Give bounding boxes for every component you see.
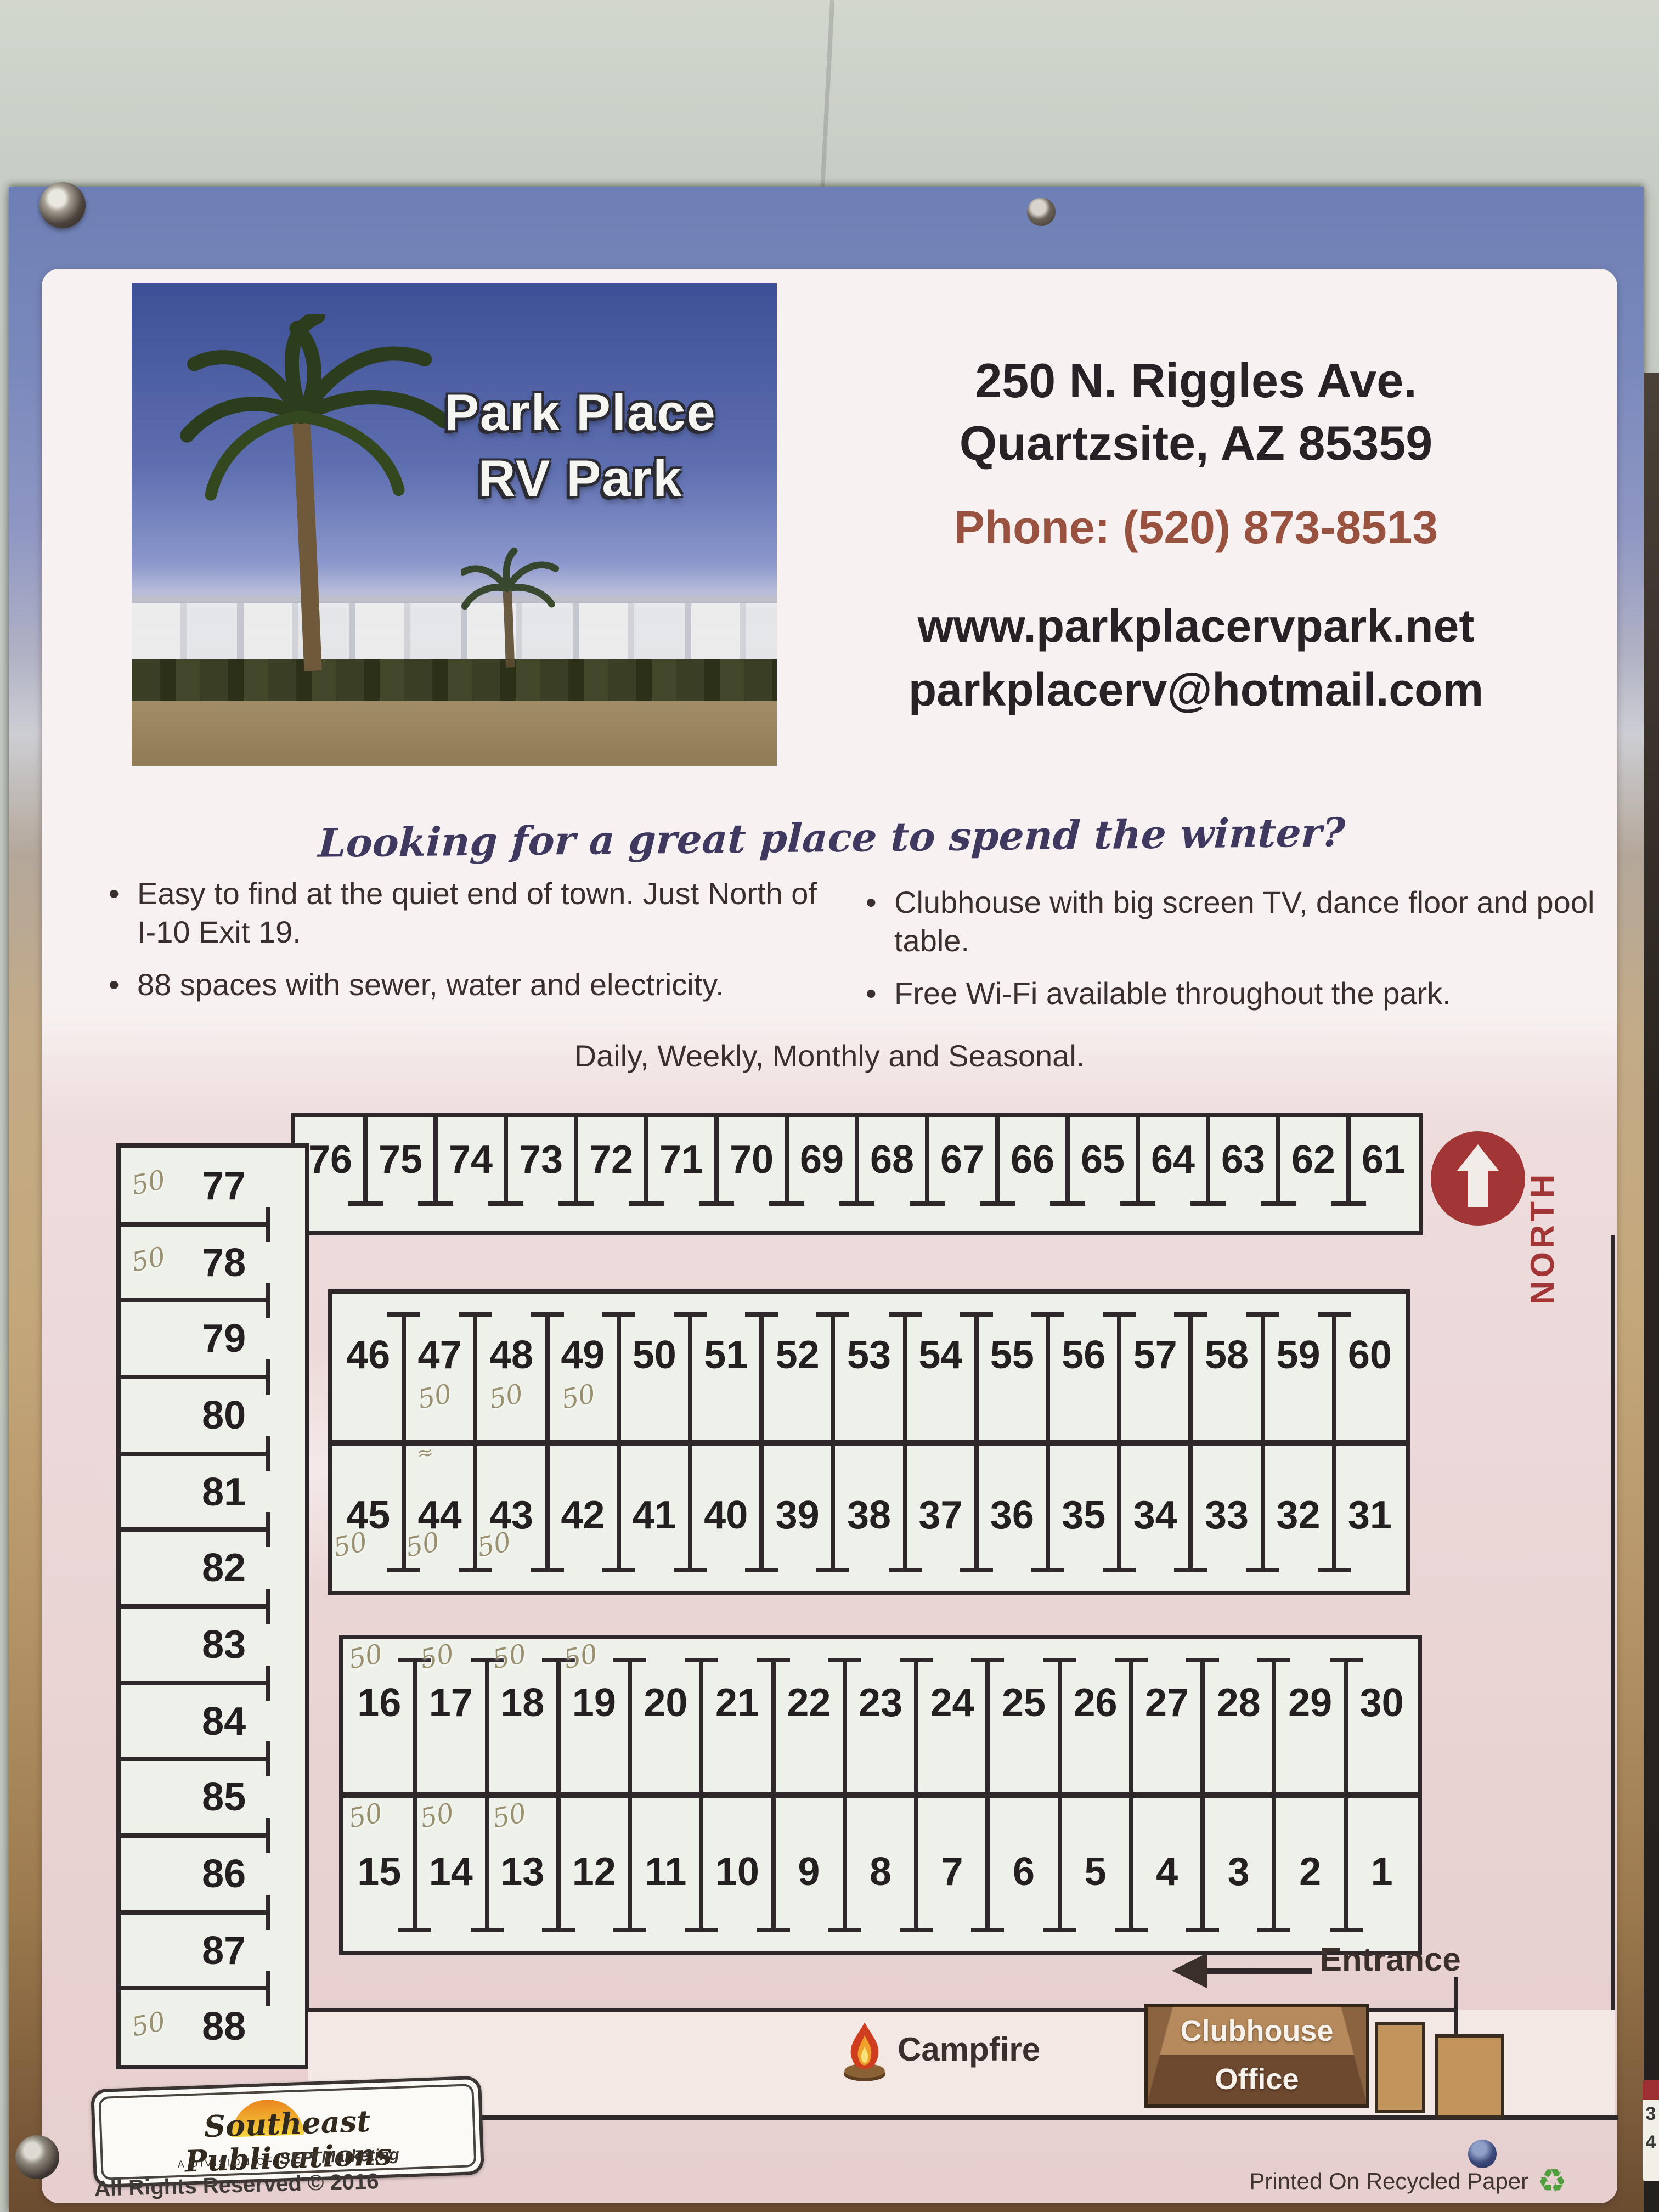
site-number: 13 — [500, 1848, 544, 1894]
site-number: 85 — [202, 1774, 246, 1820]
feature-bullet: Free Wi-Fi available throughout the park… — [861, 974, 1602, 1013]
park-name-title: Park Place RV Park — [399, 380, 761, 511]
site-cell-41: 41 — [619, 1446, 690, 1591]
site-cell-62: 62 — [1278, 1117, 1348, 1231]
site-number: 67 — [927, 1137, 997, 1183]
site-number: 41 — [633, 1492, 676, 1538]
site-number: 5 — [1085, 1848, 1107, 1894]
site-number: 87 — [202, 1927, 246, 1973]
site-cell-71: 71 — [646, 1117, 716, 1231]
park-name-line2: RV Park — [399, 445, 761, 511]
site-cell-44: 4450≈ — [404, 1446, 475, 1591]
site-cell-53: 53 — [833, 1294, 905, 1439]
site-cell-65: 65 — [1068, 1117, 1138, 1231]
site-cell-48: 4850 — [476, 1294, 547, 1439]
site-cell-32: 32 — [1262, 1446, 1334, 1591]
site-cell-10: 10 — [702, 1798, 774, 1951]
handwritten-note: 50 — [346, 1797, 385, 1834]
site-cell-70: 70 — [716, 1117, 787, 1231]
handwritten-note: 50 — [129, 2005, 168, 2042]
address-line1: 250 N. Riggles Ave. — [785, 350, 1607, 413]
site-cell-24: 24 — [916, 1639, 988, 1792]
site-number: 62 — [1278, 1137, 1348, 1183]
site-cell-29: 29 — [1274, 1639, 1346, 1792]
handwritten-scribble: ≈ — [416, 1441, 435, 1465]
site-number: 66 — [997, 1137, 1068, 1183]
site-cell-16: 1650 — [343, 1639, 415, 1792]
sites-column-77-88: 775078507980818283848586878850 — [116, 1143, 309, 2069]
site-number: 54 — [918, 1331, 962, 1378]
contact-block: 250 N. Riggles Ave. Quartzsite, AZ 85359… — [785, 350, 1607, 716]
site-cell-38: 38 — [833, 1446, 905, 1591]
handwritten-note: 50 — [346, 1638, 385, 1675]
panel-gap-shadow — [1644, 373, 1659, 2212]
site-number: 56 — [1062, 1331, 1105, 1378]
site-cell-12: 12 — [558, 1798, 630, 1951]
site-cell-85: 85 — [121, 1759, 305, 1836]
site-number: 10 — [715, 1848, 759, 1894]
site-number: 25 — [1002, 1680, 1046, 1726]
handwritten-note: 50 — [489, 1797, 528, 1834]
feature-bullet: Easy to find at the quiet end of town. J… — [104, 874, 834, 951]
site-cell-74: 74 — [436, 1117, 506, 1231]
site-number: 37 — [918, 1492, 962, 1538]
site-cell-52: 52 — [761, 1294, 833, 1439]
site-number: 70 — [716, 1137, 787, 1183]
pin-bottom-right — [1468, 2140, 1497, 2168]
site-cell-84: 84 — [121, 1683, 305, 1759]
site-number: 74 — [436, 1137, 506, 1183]
site-cell-36: 36 — [977, 1446, 1048, 1591]
site-number: 77 — [202, 1163, 246, 1209]
publisher-logo: Southeast Publications A DIVISION OF SEP… — [91, 2076, 484, 2188]
site-cell-27: 27 — [1131, 1639, 1203, 1792]
handwritten-note: 50 — [129, 1164, 168, 1201]
site-number: 3 — [1228, 1848, 1250, 1894]
site-number: 7 — [941, 1848, 963, 1894]
site-number: 28 — [1217, 1680, 1261, 1726]
site-number: 84 — [202, 1698, 246, 1744]
site-cell-55: 55 — [977, 1294, 1048, 1439]
ground-illustration — [132, 701, 777, 766]
feature-bullet: Clubhouse with big screen TV, dance floo… — [861, 883, 1602, 960]
site-number: 71 — [646, 1137, 716, 1183]
site-number: 75 — [365, 1137, 436, 1183]
website-url: www.parkplacervpark.net — [785, 600, 1607, 653]
site-number: 42 — [561, 1492, 605, 1538]
site-cell-57: 57 — [1119, 1294, 1190, 1439]
campfire-label: Campfire — [898, 2032, 1040, 2069]
site-cell-43: 4350 — [476, 1446, 547, 1591]
screw-bottom-left — [15, 2135, 59, 2179]
site-cell-64: 64 — [1138, 1117, 1208, 1231]
site-number: 47 — [418, 1331, 462, 1378]
recycled-paper-note: Printed On Recycled Paper ♻ — [1238, 2163, 1567, 2201]
site-number: 40 — [704, 1492, 748, 1538]
site-number: 79 — [202, 1316, 246, 1362]
building-block-2 — [1435, 2034, 1504, 2119]
site-number: 18 — [500, 1680, 544, 1726]
site-number: 20 — [644, 1680, 687, 1726]
handwritten-note: 50 — [129, 1241, 168, 1278]
site-cell-39: 39 — [761, 1446, 833, 1591]
site-cell-81: 81 — [121, 1453, 305, 1530]
site-number: 60 — [1348, 1331, 1392, 1378]
site-cell-88: 8850 — [121, 1989, 305, 2065]
rv-park-poster: Park Place RV Park 250 N. Riggles Ave. Q… — [9, 187, 1644, 2212]
site-cell-26: 26 — [1059, 1639, 1131, 1792]
site-number: 69 — [787, 1137, 857, 1183]
sites-block-16-30-15-1: 16501750185019502021222324252627282930 1… — [339, 1635, 1422, 1955]
site-cell-5: 5 — [1059, 1798, 1131, 1951]
map-bottom-boundary — [308, 2115, 1618, 2120]
site-number: 8 — [870, 1848, 891, 1894]
site-cell-73: 73 — [506, 1117, 576, 1231]
small-palm-icon — [461, 544, 560, 676]
site-cell-42: 42 — [547, 1446, 618, 1591]
site-number: 38 — [847, 1492, 891, 1538]
site-cell-82: 82 — [121, 1530, 305, 1606]
site-cell-79: 79 — [121, 1301, 305, 1377]
site-number: 88 — [202, 2004, 246, 2050]
site-cell-61: 61 — [1348, 1117, 1419, 1231]
site-cell-66: 66 — [997, 1117, 1068, 1231]
site-number: 1 — [1371, 1848, 1393, 1894]
features-list-left: Easy to find at the quiet end of town. J… — [104, 874, 834, 1018]
site-number: 61 — [1348, 1137, 1419, 1183]
north-label: NORTH — [1525, 1129, 1562, 1305]
site-cell-56: 56 — [1048, 1294, 1119, 1439]
site-cell-68: 68 — [857, 1117, 927, 1231]
sites-row-76-61: 76757473727170696867666564636261 — [291, 1113, 1423, 1235]
site-number: 32 — [1276, 1492, 1320, 1538]
site-number: 49 — [561, 1331, 605, 1378]
site-number: 63 — [1208, 1137, 1278, 1183]
sites-row-15-1: 155014501350121110987654321 — [343, 1798, 1418, 1951]
map-right-boundary — [1611, 1235, 1615, 2120]
site-number: 46 — [346, 1331, 390, 1378]
site-cell-19: 1950 — [558, 1639, 630, 1792]
site-cell-3: 3 — [1203, 1798, 1274, 1951]
site-number: 81 — [202, 1469, 246, 1515]
site-number: 65 — [1068, 1137, 1138, 1183]
site-number: 26 — [1074, 1680, 1118, 1726]
building-block-1 — [1375, 2022, 1425, 2113]
site-number: 73 — [506, 1137, 576, 1183]
site-cell-28: 28 — [1203, 1639, 1274, 1792]
poster-content-card: Park Place RV Park 250 N. Riggles Ave. Q… — [42, 269, 1617, 2203]
site-cell-59: 59 — [1262, 1294, 1334, 1439]
site-number: 11 — [645, 1848, 686, 1894]
site-cell-80: 80 — [121, 1377, 305, 1453]
park-photo: Park Place RV Park — [132, 283, 777, 766]
site-number: 82 — [202, 1545, 246, 1591]
site-cell-11: 11 — [630, 1798, 702, 1951]
site-number: 16 — [357, 1680, 401, 1726]
email-address: parkplacerv@hotmail.com — [785, 664, 1607, 716]
site-cell-23: 23 — [845, 1639, 917, 1792]
handwritten-note: 50 — [558, 1378, 597, 1414]
site-cell-75: 75 — [365, 1117, 436, 1231]
site-cell-4: 4 — [1131, 1798, 1203, 1951]
handwritten-note: 50 — [561, 1638, 600, 1675]
site-number: 21 — [715, 1680, 759, 1726]
site-number: 24 — [930, 1680, 974, 1726]
site-cell-17: 1750 — [415, 1639, 487, 1792]
screw-top-middle — [1027, 198, 1056, 226]
address-line2: Quartzsite, AZ 85359 — [785, 413, 1607, 475]
site-number: 72 — [576, 1137, 646, 1183]
site-cell-37: 37 — [905, 1446, 976, 1591]
tagline: Looking for a great place to spend the w… — [172, 808, 1491, 868]
site-cell-50: 50 — [619, 1294, 690, 1439]
site-cell-30: 30 — [1346, 1639, 1418, 1792]
site-number: 86 — [202, 1851, 246, 1897]
site-cell-72: 72 — [576, 1117, 646, 1231]
site-number: 58 — [1205, 1331, 1249, 1378]
site-cell-49: 4950 — [547, 1294, 618, 1439]
site-number: 15 — [357, 1848, 401, 1894]
handwritten-note: 50 — [415, 1378, 454, 1414]
site-cell-13: 1350 — [487, 1798, 558, 1951]
site-cell-9: 9 — [773, 1798, 845, 1951]
entrance-label: Entrance — [1320, 1942, 1461, 1979]
site-cell-21: 21 — [702, 1639, 774, 1792]
site-number: 50 — [633, 1331, 676, 1378]
wall-seam — [820, 0, 834, 192]
feature-bullet: 88 spaces with sewer, water and electric… — [104, 966, 834, 1004]
site-cell-78: 7850 — [121, 1224, 305, 1300]
site-number: 51 — [704, 1331, 748, 1378]
handwritten-note: 50 — [403, 1527, 442, 1564]
features-list-right: Clubhouse with big screen TV, dance floo… — [861, 883, 1602, 1027]
north-arrow-icon — [1431, 1131, 1525, 1226]
site-cell-60: 60 — [1334, 1294, 1406, 1439]
clubhouse-label-line1: Clubhouse — [1148, 2007, 1366, 2055]
adjacent-sign-red-corner — [1643, 2080, 1659, 2100]
site-number: 39 — [776, 1492, 820, 1538]
clubhouse-label-line2: Office — [1148, 2055, 1366, 2103]
site-number: 4 — [1156, 1848, 1178, 1894]
site-cell-47: 4750 — [404, 1294, 475, 1439]
recycle-icon: ♻ — [1537, 2163, 1567, 2201]
sites-row-16-30: 16501750185019502021222324252627282930 — [343, 1639, 1418, 1798]
site-number: 33 — [1205, 1492, 1249, 1538]
site-cell-45: 4550 — [332, 1446, 404, 1591]
phone-number: Phone: (520) 873-8513 — [785, 501, 1607, 554]
site-number: 78 — [202, 1239, 246, 1285]
site-number: 55 — [990, 1331, 1034, 1378]
handwritten-note: 50 — [474, 1527, 513, 1564]
site-cell-14: 1450 — [415, 1798, 487, 1951]
site-cell-35: 35 — [1048, 1446, 1119, 1591]
site-cell-2: 2 — [1274, 1798, 1346, 1951]
site-number: 9 — [798, 1848, 820, 1894]
campfire-icon — [840, 2018, 889, 2084]
screw-top-left — [39, 182, 86, 228]
site-number: 57 — [1133, 1331, 1177, 1378]
site-cell-6: 6 — [988, 1798, 1060, 1951]
entrance-arrow-head — [1172, 1953, 1207, 1988]
site-cell-58: 58 — [1191, 1294, 1262, 1439]
site-cell-86: 86 — [121, 1836, 305, 1912]
site-number: 64 — [1138, 1137, 1208, 1183]
site-number: 53 — [847, 1331, 891, 1378]
handwritten-note: 50 — [418, 1797, 457, 1834]
site-cell-87: 87 — [121, 1912, 305, 1988]
photographed-poster-scene: Park Place RV Park 250 N. Riggles Ave. Q… — [0, 0, 1659, 2212]
campfire-legend: Campfire — [840, 2018, 1040, 2084]
site-cell-18: 1850 — [487, 1639, 558, 1792]
site-number: 19 — [572, 1680, 616, 1726]
site-number: 36 — [990, 1492, 1034, 1538]
site-number: 2 — [1299, 1848, 1321, 1894]
site-cell-22: 22 — [773, 1639, 845, 1792]
handwritten-note: 50 — [489, 1638, 528, 1675]
site-cell-40: 40 — [690, 1446, 761, 1591]
site-cell-54: 54 — [905, 1294, 976, 1439]
site-cell-77: 7750 — [121, 1148, 305, 1224]
site-cell-34: 34 — [1119, 1446, 1190, 1591]
site-number: 68 — [857, 1137, 927, 1183]
sites-row-46-60: 464750485049505051525354555657585960 — [332, 1294, 1406, 1446]
site-number: 31 — [1348, 1492, 1392, 1538]
site-number: 12 — [572, 1848, 616, 1894]
site-cell-46: 46 — [332, 1294, 404, 1439]
site-number: 14 — [429, 1848, 473, 1894]
handwritten-note: 50 — [487, 1378, 526, 1414]
site-number: 23 — [859, 1680, 902, 1726]
site-number: 80 — [202, 1392, 246, 1438]
site-cell-7: 7 — [916, 1798, 988, 1951]
entrance-arrow-icon — [1205, 1968, 1312, 1974]
adjacent-sign-fragment: 3 4 — [1643, 2080, 1659, 2181]
site-cell-15: 1550 — [343, 1798, 415, 1951]
site-cell-1: 1 — [1346, 1798, 1418, 1951]
clubhouse-office-sign: Clubhouse Office — [1144, 2004, 1369, 2108]
site-cell-33: 33 — [1191, 1446, 1262, 1591]
site-number: 27 — [1145, 1680, 1189, 1726]
site-number: 35 — [1062, 1492, 1105, 1538]
sites-row-45-31: 45504450≈4350424140393837363534333231 — [332, 1446, 1406, 1591]
site-cell-51: 51 — [690, 1294, 761, 1439]
site-cell-67: 67 — [927, 1117, 997, 1231]
road-end-tick — [1454, 1977, 1458, 2041]
site-number: 59 — [1276, 1331, 1320, 1378]
handwritten-note: 50 — [331, 1527, 370, 1564]
site-number: 48 — [489, 1331, 533, 1378]
site-number: 83 — [202, 1622, 246, 1668]
site-cell-83: 83 — [121, 1606, 305, 1683]
site-cell-69: 69 — [787, 1117, 857, 1231]
site-number: 34 — [1133, 1492, 1177, 1538]
site-cell-25: 25 — [988, 1639, 1060, 1792]
site-cell-31: 31 — [1334, 1446, 1406, 1591]
site-cell-8: 8 — [845, 1798, 917, 1951]
park-name-line1: Park Place — [399, 380, 761, 445]
rates-line: Daily, Weekly, Monthly and Seasonal. — [42, 1039, 1617, 1074]
site-number: 22 — [787, 1680, 831, 1726]
sites-block-46-60-45-31: 464750485049505051525354555657585960 455… — [328, 1289, 1410, 1595]
site-number: 17 — [429, 1680, 473, 1726]
site-number: 6 — [1013, 1848, 1035, 1894]
site-cell-20: 20 — [630, 1639, 702, 1792]
site-number: 30 — [1360, 1680, 1404, 1726]
site-number: 29 — [1288, 1680, 1332, 1726]
site-number: 52 — [776, 1331, 820, 1378]
handwritten-note: 50 — [418, 1638, 457, 1675]
site-cell-63: 63 — [1208, 1117, 1278, 1231]
